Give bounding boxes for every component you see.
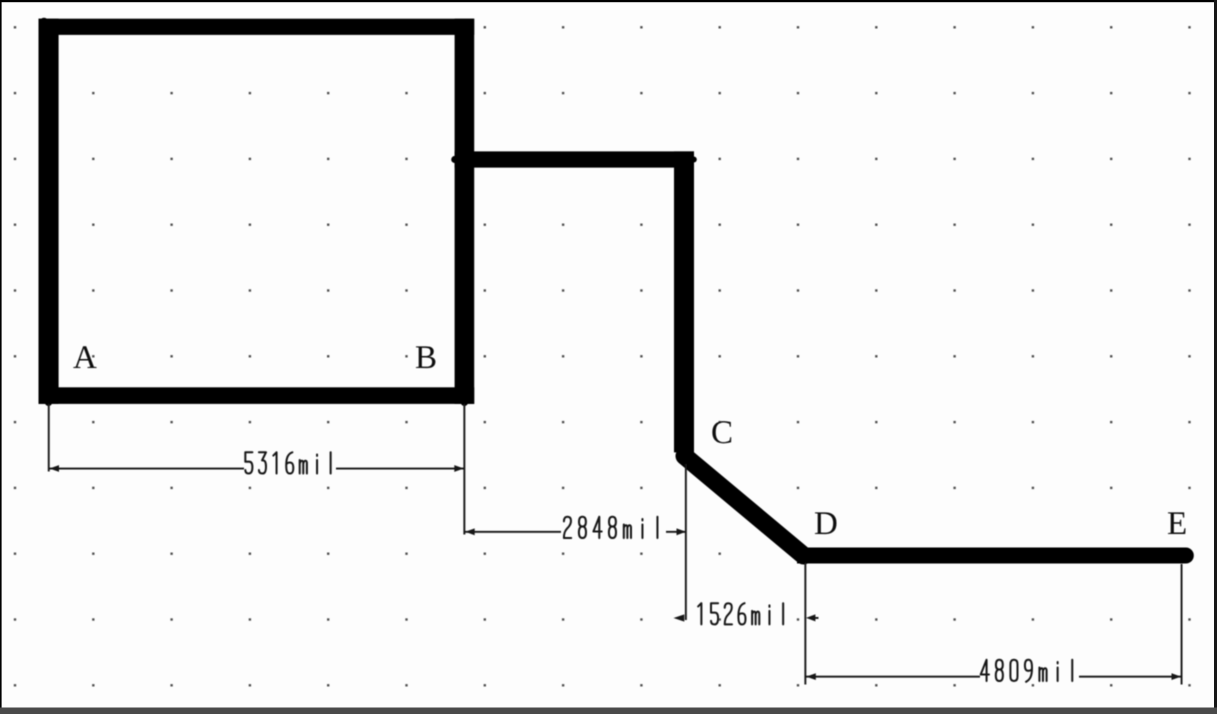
svg-text:D: D — [814, 506, 838, 542]
svg-text:A: A — [73, 340, 97, 376]
svg-text:B: B — [415, 340, 437, 376]
svg-text:E: E — [1167, 506, 1187, 542]
svg-text:C: C — [711, 415, 733, 451]
